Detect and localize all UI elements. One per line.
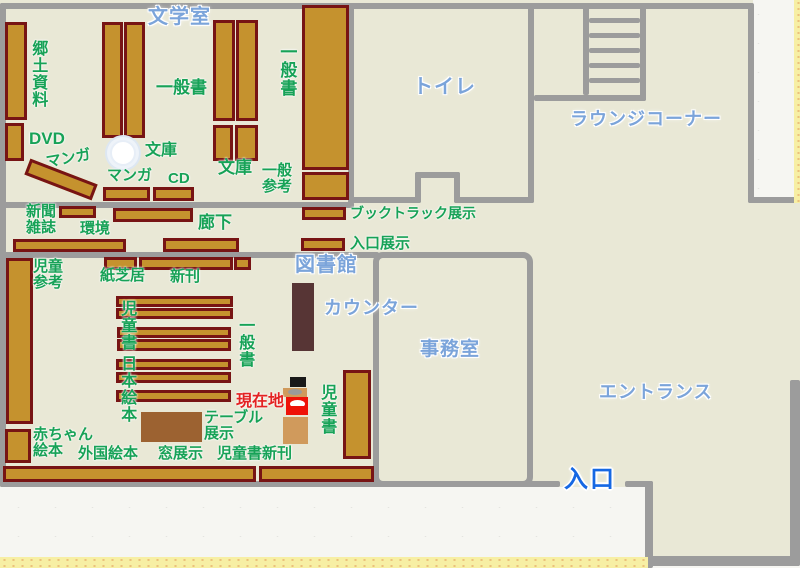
area-label-general-reference: 一般 参考 xyxy=(262,163,292,195)
area-label-kamishibai: 紙芝居 xyxy=(100,268,145,284)
room-label-toilet: トイレ xyxy=(413,77,476,99)
library-floor-map: 文学室 トイレ ラウンジコーナー 図書館 カウンター 事務室 エントランス 入口… xyxy=(0,0,800,568)
paper-border xyxy=(0,557,648,568)
area-label-window-display: 窓展示 xyxy=(158,446,203,462)
area-label-local-materials: 郷土資料 xyxy=(29,40,46,108)
area-label-environment: 環境 xyxy=(80,221,110,237)
bookshelf xyxy=(213,125,233,161)
cart-wheel xyxy=(288,389,302,395)
bookshelf-environment xyxy=(13,239,126,252)
area-label-general-books-right: 一般書 xyxy=(277,43,295,97)
area-label-booktruck-display: ブックトラック展示 xyxy=(350,206,476,221)
bookshelf-baby-books xyxy=(5,429,31,463)
bookshelf-local-materials xyxy=(5,22,27,120)
bookshelf-dvd xyxy=(5,123,24,161)
bookshelf-corridor xyxy=(163,238,239,252)
area-label-general-books-top: 一般書 xyxy=(156,79,207,97)
bookshelf xyxy=(124,22,145,138)
bookshelf xyxy=(236,20,258,121)
office-room-outline xyxy=(373,252,533,487)
current-location-marker xyxy=(286,397,308,415)
wall xyxy=(348,197,421,203)
bookshelf xyxy=(102,22,123,138)
area-label-entrance-display: 入口展示 xyxy=(350,236,410,252)
bookshelf-window-display xyxy=(3,466,256,482)
area-label-manga: マンガ xyxy=(107,168,152,184)
bookshelf-general-reference xyxy=(302,172,349,200)
wall xyxy=(790,380,800,566)
area-label-bunko-circle: 文庫 xyxy=(145,142,177,159)
staircase-step xyxy=(589,78,640,83)
area-label-children-reference: 児童 参考 xyxy=(33,259,63,291)
area-label-japanese-picture-books: 日本絵本 xyxy=(118,355,135,423)
staircase-rail xyxy=(640,3,646,101)
bookshelf xyxy=(234,257,251,270)
bookshelf-children-left xyxy=(6,258,33,424)
bookshelf-entrance-display xyxy=(301,238,345,251)
wall xyxy=(748,3,754,203)
area-label-dvd: DVD xyxy=(29,130,65,148)
bookshelf-general xyxy=(302,5,349,170)
counter-desk xyxy=(292,283,314,351)
room-label-counter: カウンター xyxy=(324,299,419,318)
marker-stripe xyxy=(290,406,305,408)
book-cart xyxy=(283,388,307,397)
bookshelf-children-new xyxy=(259,466,374,482)
room-label-entrance-door: 入口 xyxy=(564,467,616,493)
bookshelf xyxy=(213,20,235,121)
staircase-step xyxy=(589,48,640,53)
bookshelf xyxy=(235,125,258,161)
area-label-general-books-children: 一般書 xyxy=(236,317,253,368)
room-label-lounge: ラウンジコーナー xyxy=(570,110,722,129)
bookshelf xyxy=(113,208,193,222)
table-display xyxy=(141,412,202,442)
room-label-entrance-hall: エントランス xyxy=(599,383,713,402)
room-label-literature: 文学室 xyxy=(148,7,211,29)
bookshelf-manga xyxy=(103,187,150,201)
area-label-corridor: 廊下 xyxy=(198,214,232,232)
area-label-newspaper-magazines: 新聞 雑誌 xyxy=(26,204,56,236)
bookshelf-booktruck-display xyxy=(302,207,346,220)
room-label-office: 事務室 xyxy=(420,340,480,361)
wall xyxy=(748,197,800,203)
wall xyxy=(645,556,800,566)
area-label-bunko: 文庫 xyxy=(218,159,252,177)
area-label-children-books-left: 児童書 xyxy=(118,300,135,351)
area-label-children-books-right: 児童書 xyxy=(318,384,335,435)
wall xyxy=(645,481,653,568)
display-stand xyxy=(283,417,308,444)
current-location-label: 現在地 xyxy=(236,393,284,410)
bookshelf-cd xyxy=(153,187,194,201)
wall-under-stairs xyxy=(534,95,646,101)
area-label-table-display: テーブル 展示 xyxy=(204,410,263,442)
bookshelf-children-right xyxy=(343,370,371,459)
area-label-children-new-arrivals: 児童書新刊 xyxy=(217,446,292,462)
area-label-cd: CD xyxy=(168,171,190,187)
marker-black-box xyxy=(290,377,306,387)
paper-border xyxy=(794,0,800,203)
pillar-circle xyxy=(110,140,136,166)
area-label-foreign-picture-books: 外国絵本 xyxy=(78,446,138,462)
staircase-step xyxy=(589,18,640,23)
bookshelf-newspaper xyxy=(59,206,96,218)
wall xyxy=(454,197,534,203)
room-label-library: 図書館 xyxy=(295,255,358,277)
wall-toilet-right xyxy=(528,3,534,203)
staircase-step xyxy=(589,63,640,68)
staircase-step xyxy=(589,33,640,38)
area-label-new-arrivals: 新刊 xyxy=(170,269,200,285)
